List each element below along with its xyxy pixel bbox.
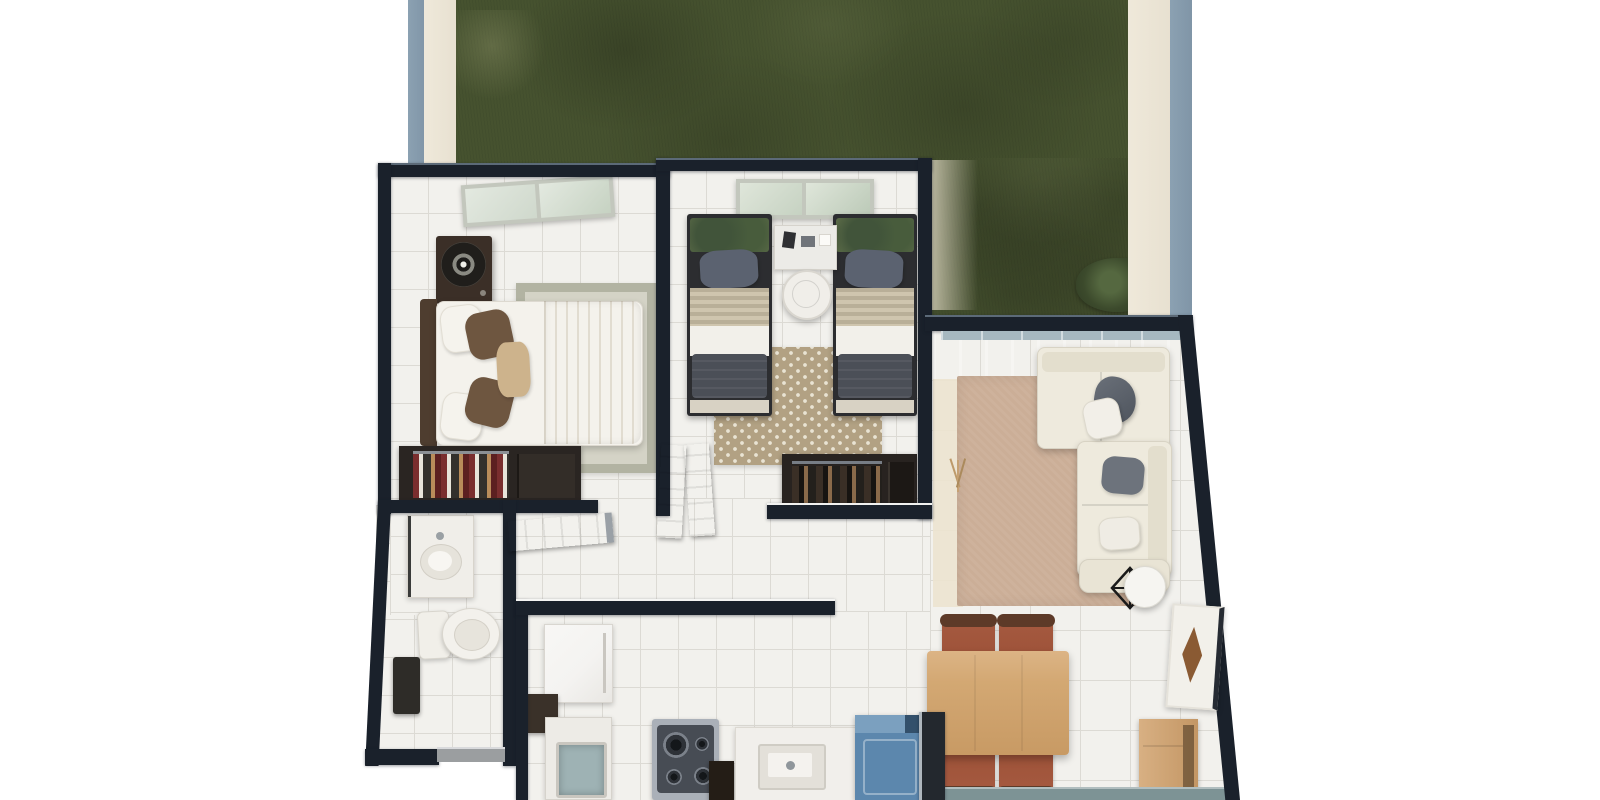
double-bed bbox=[420, 299, 641, 446]
bed-footboard bbox=[690, 400, 769, 413]
twin-bed-right bbox=[833, 214, 917, 416]
bed-head-plants bbox=[836, 218, 914, 252]
washing-machine bbox=[855, 715, 922, 800]
sofa-pillow-white bbox=[1098, 516, 1141, 552]
tank-basin bbox=[556, 742, 607, 798]
bedroom-1-top-wall bbox=[378, 163, 670, 177]
bedroom-2-right-wall bbox=[918, 158, 932, 519]
dried-plant bbox=[944, 458, 970, 494]
stove-burner bbox=[666, 769, 682, 785]
fridge-handle bbox=[603, 633, 606, 693]
dresser-knob bbox=[480, 290, 486, 296]
toilet-bowl-inner bbox=[454, 619, 490, 651]
bed-sheet bbox=[836, 326, 914, 356]
sideboard-open-side bbox=[1183, 725, 1194, 795]
table-plank-seam bbox=[1021, 655, 1023, 751]
waste-bin bbox=[393, 657, 420, 714]
lawn-main bbox=[456, 0, 1132, 166]
dirt-patch bbox=[932, 160, 978, 310]
bed-striped-band bbox=[690, 288, 769, 328]
bed-striped-band bbox=[836, 288, 914, 328]
washer-lid bbox=[863, 739, 917, 795]
bedroom-1-wardrobe bbox=[399, 446, 581, 504]
bathroom-door-threshold bbox=[437, 747, 505, 762]
bedroom-2-window bbox=[736, 179, 874, 219]
faucet bbox=[786, 761, 795, 770]
chair-backrest bbox=[997, 614, 1055, 627]
bed-pillow-slate bbox=[699, 249, 759, 290]
nightstand-item-white bbox=[819, 234, 831, 246]
perimeter-wall-right-outer bbox=[1170, 0, 1192, 318]
bed-head-plants bbox=[690, 218, 769, 252]
artwork-panel bbox=[1165, 603, 1224, 710]
kitchen-dining-divider bbox=[919, 712, 945, 800]
window-pane bbox=[740, 183, 802, 215]
wardrobe-side-panel bbox=[517, 454, 575, 498]
bedroom-2-wardrobe bbox=[782, 454, 917, 509]
sink-counter bbox=[735, 727, 857, 800]
artwork-diamond-motif bbox=[1180, 626, 1204, 683]
bed-sheet bbox=[690, 326, 769, 356]
vanity-edge bbox=[408, 516, 411, 597]
sideboard-shelf-line bbox=[1143, 745, 1183, 747]
window-pane bbox=[539, 179, 611, 218]
bathroom-bottom-wall bbox=[365, 749, 439, 765]
living-room-top-wall bbox=[925, 315, 1193, 331]
wire-side-table-top bbox=[1124, 566, 1166, 608]
vanity-sink-bowl bbox=[420, 544, 462, 580]
bed-footboard bbox=[836, 400, 914, 413]
bedroom-2-top-wall bbox=[656, 158, 932, 171]
nightstand bbox=[774, 225, 837, 270]
perimeter-wall-right-inner bbox=[1128, 0, 1172, 318]
wardrobe-rail bbox=[792, 461, 882, 464]
bedroom-2-bottom-wall bbox=[767, 503, 932, 519]
bathroom-vanity bbox=[407, 515, 474, 598]
nightstand-item-gray bbox=[801, 236, 815, 247]
dresser bbox=[436, 236, 492, 304]
sofa-backrest bbox=[1148, 446, 1167, 572]
stove-cooktop bbox=[657, 725, 714, 793]
headboard bbox=[420, 299, 437, 446]
table-plank-seam bbox=[974, 655, 976, 751]
round-table-inner-ring bbox=[792, 280, 820, 308]
sliding-glass-door bbox=[941, 331, 1187, 340]
window-pane bbox=[806, 183, 870, 215]
floor-plan-render bbox=[0, 0, 1600, 800]
wardrobe-clothes bbox=[413, 454, 509, 498]
bed-pillow-accent bbox=[496, 341, 532, 398]
sofa-pillow-gray bbox=[1100, 455, 1145, 496]
sofa-seam bbox=[1082, 504, 1148, 506]
bottom-wall-edge bbox=[941, 787, 1227, 800]
dining-table bbox=[927, 651, 1069, 755]
bedroom-1-left-wall bbox=[378, 163, 391, 514]
bed-blanket-charcoal bbox=[838, 354, 912, 398]
perimeter-wall-left-inner bbox=[424, 0, 458, 168]
bed-pillow-slate bbox=[844, 249, 904, 290]
kitchen-top-wall bbox=[516, 599, 835, 615]
kitchen-left-wall bbox=[516, 600, 528, 800]
bed-blanket bbox=[544, 301, 641, 444]
vanity-faucet bbox=[436, 532, 444, 540]
sink-bowl-inner bbox=[428, 551, 452, 571]
round-side-table bbox=[782, 270, 832, 320]
twin-bed-left bbox=[687, 214, 772, 416]
bed-blanket-charcoal bbox=[692, 354, 767, 398]
nightstand-item-dark bbox=[782, 231, 796, 249]
laundry-tank bbox=[545, 717, 612, 800]
refrigerator bbox=[544, 624, 613, 703]
wardrobe-side-panel bbox=[888, 462, 914, 504]
kitchen-dark-bin bbox=[709, 761, 734, 800]
bedroom-2-door-leaf bbox=[657, 444, 687, 538]
stove-burner bbox=[663, 732, 689, 758]
sofa-backrest bbox=[1042, 352, 1165, 372]
chair-backrest bbox=[940, 614, 997, 627]
toilet-bowl bbox=[442, 608, 500, 660]
bedroom-1-bottom-wall bbox=[378, 500, 598, 513]
wardrobe-clothes bbox=[792, 466, 882, 504]
window-pane bbox=[465, 184, 537, 223]
table-fan bbox=[441, 242, 486, 287]
stove-burner bbox=[695, 737, 709, 751]
lawn-light-patch bbox=[456, 10, 546, 100]
toilet bbox=[416, 606, 500, 660]
